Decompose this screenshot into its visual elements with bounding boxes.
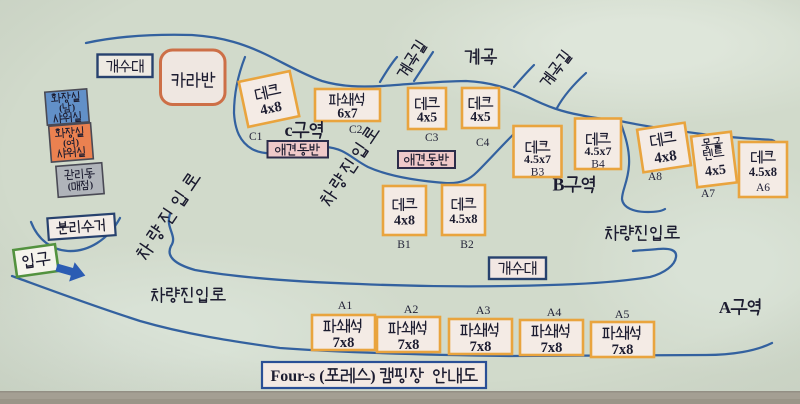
svg-text:6x7: 6x7 <box>337 106 358 121</box>
svg-text:A5: A5 <box>615 307 630 321</box>
svg-text:7x8: 7x8 <box>333 335 355 351</box>
svg-text:4.5x8: 4.5x8 <box>449 212 477 226</box>
svg-text:C1: C1 <box>249 131 263 143</box>
svg-text:Four-s (: Four-s ( <box>271 368 325 385</box>
svg-text:A4: A4 <box>547 305 562 319</box>
svg-text:B4: B4 <box>591 158 605 170</box>
svg-text:C3: C3 <box>425 132 439 144</box>
svg-text:A8: A8 <box>648 171 662 183</box>
svg-text:C2: C2 <box>349 124 363 136</box>
svg-text:7x8: 7x8 <box>612 342 634 358</box>
svg-text:4x8: 4x8 <box>394 213 415 228</box>
svg-text:A3: A3 <box>476 303 491 317</box>
svg-text:A7: A7 <box>701 188 715 200</box>
svg-text:4x5: 4x5 <box>470 109 491 124</box>
svg-text:A1: A1 <box>338 298 353 312</box>
svg-text:c: c <box>285 120 293 140</box>
svg-text:4x8: 4x8 <box>653 148 678 167</box>
svg-text:): ) <box>370 368 375 385</box>
svg-text:4x5: 4x5 <box>417 110 438 125</box>
svg-text:B1: B1 <box>397 239 411 251</box>
svg-text:4x5: 4x5 <box>704 162 727 179</box>
svg-text:C4: C4 <box>476 137 490 149</box>
svg-text:7x8: 7x8 <box>398 337 420 353</box>
svg-text:4.5x8: 4.5x8 <box>749 165 777 179</box>
svg-text:7x8: 7x8 <box>541 340 563 356</box>
svg-text:4.5x7: 4.5x7 <box>585 144 612 158</box>
svg-text:A: A <box>719 298 732 317</box>
svg-text:B: B <box>553 175 565 195</box>
svg-text:B2: B2 <box>460 239 474 251</box>
svg-text:A2: A2 <box>404 302 419 316</box>
svg-text:7x8: 7x8 <box>470 339 492 355</box>
svg-text:B3: B3 <box>531 166 545 178</box>
svg-text:4.5x7: 4.5x7 <box>524 152 551 166</box>
svg-text:A6: A6 <box>756 182 770 194</box>
